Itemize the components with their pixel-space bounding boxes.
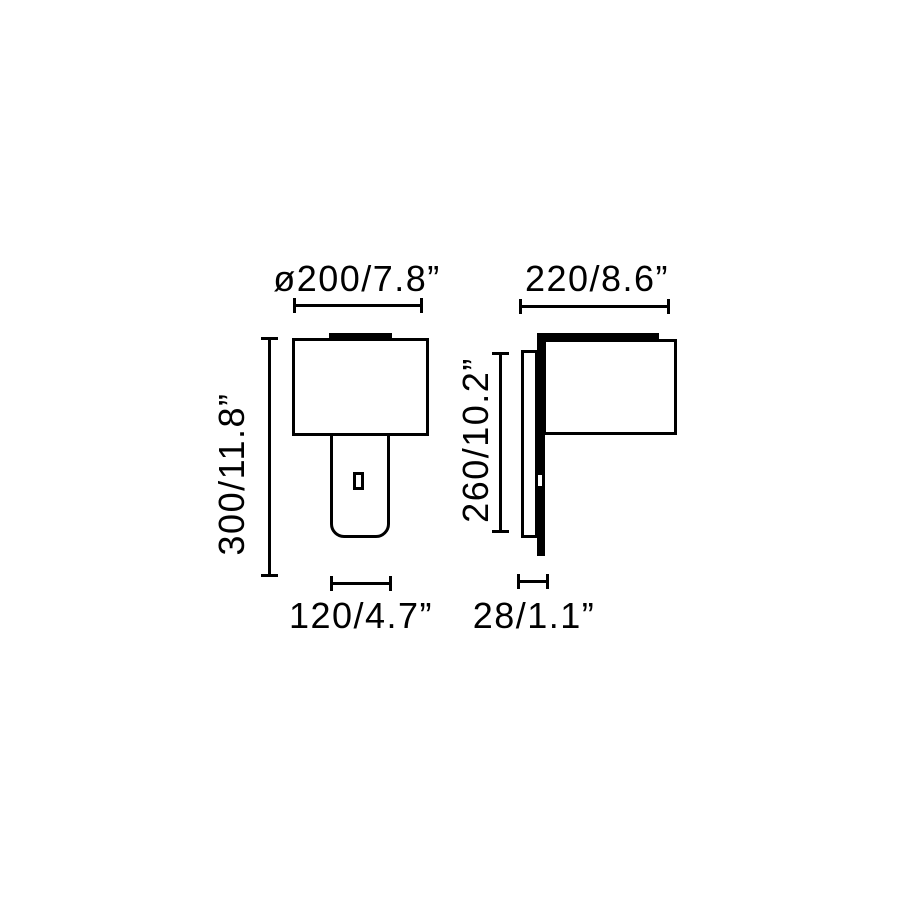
front-shade bbox=[292, 338, 429, 436]
front-switch bbox=[353, 472, 364, 490]
side-depth-label: 28/1.1” bbox=[473, 598, 596, 634]
side-switch bbox=[535, 472, 545, 489]
front-width-label: ø200/7.8” bbox=[273, 261, 441, 297]
dimension-tick bbox=[517, 574, 520, 589]
front-base-dimension-line bbox=[330, 582, 392, 585]
side-width-label: 220/8.6” bbox=[525, 261, 669, 297]
dimension-tick bbox=[261, 574, 278, 577]
side-depth-dimension-line bbox=[517, 580, 549, 583]
front-height-dimension-line bbox=[268, 337, 271, 577]
dimension-tick bbox=[519, 299, 522, 314]
side-shade bbox=[543, 339, 677, 435]
front-height-label: 300/11.8” bbox=[214, 393, 250, 556]
dimension-tick bbox=[667, 299, 670, 314]
side-height-label: 260/10.2” bbox=[458, 357, 494, 523]
dimension-tick bbox=[293, 298, 296, 313]
front-width-dimension-line bbox=[293, 304, 423, 307]
dimension-diagram: ø200/7.8” 300/11.8” 120/4.7” 220/8.6” bbox=[0, 0, 900, 900]
side-height-dimension-line bbox=[499, 352, 502, 533]
dimension-tick bbox=[420, 298, 423, 313]
side-body-bar bbox=[537, 334, 545, 556]
side-width-dimension-line bbox=[519, 305, 670, 308]
dimension-tick bbox=[546, 574, 549, 589]
dimension-tick bbox=[492, 352, 509, 355]
front-base-width-label: 120/4.7” bbox=[289, 598, 433, 634]
dimension-tick bbox=[492, 530, 509, 533]
dimension-tick bbox=[261, 337, 278, 340]
dimension-tick bbox=[330, 576, 333, 591]
dimension-tick bbox=[389, 576, 392, 591]
side-wall-plate bbox=[521, 350, 538, 538]
